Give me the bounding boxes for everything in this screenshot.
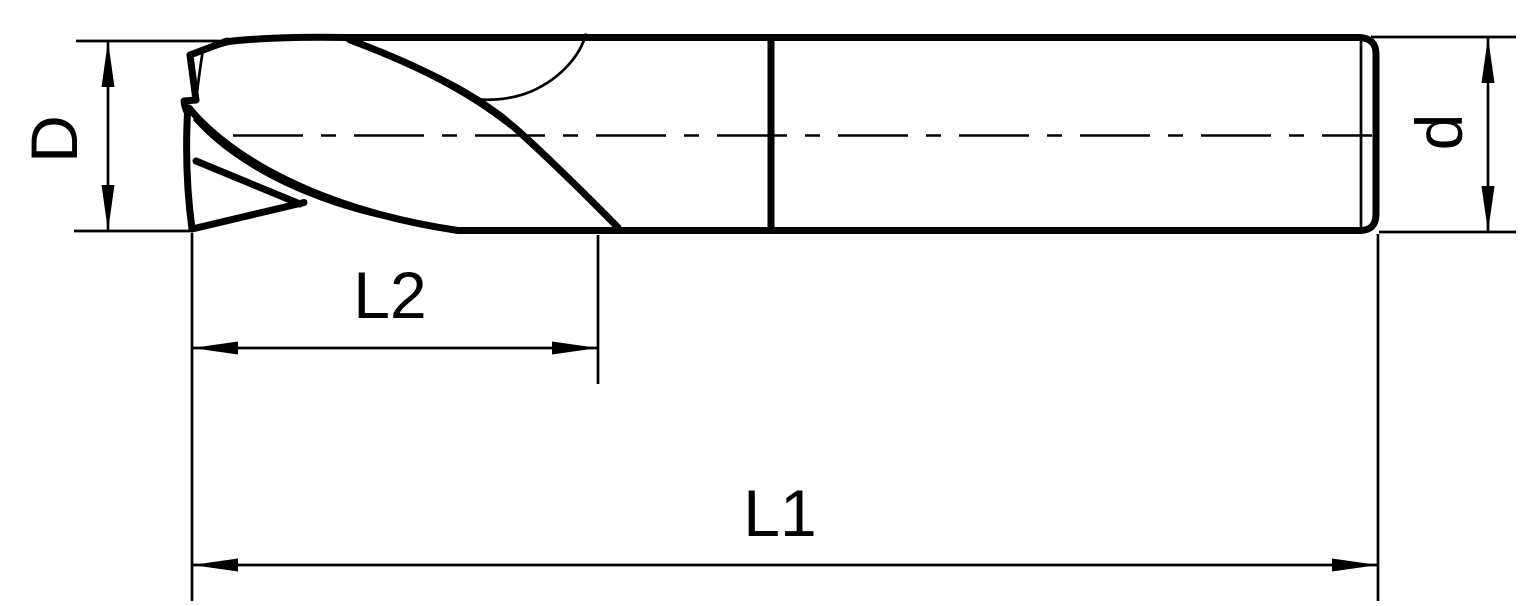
tool-body xyxy=(224,37,1376,230)
tip-corner-bevel xyxy=(190,41,227,55)
dimension-L1-label: L1 xyxy=(743,476,816,550)
flute-relief-outer-arc xyxy=(189,108,458,231)
dimension-L2-arrow-left xyxy=(192,342,238,355)
helix-edge-thick xyxy=(350,40,618,228)
dimension-D-arrow-down xyxy=(102,185,115,231)
second-flute-leaf-curve xyxy=(479,34,586,100)
dimension-L2-arrow-right xyxy=(552,342,598,355)
end-mill-technical-drawing: D d L2 L1 xyxy=(0,0,1529,606)
flutes xyxy=(189,34,618,231)
end-tooth-bottom-edge xyxy=(192,203,304,230)
dimension-d-arrow-up xyxy=(1482,37,1495,83)
dimension-D-label: D xyxy=(17,115,91,163)
tip-left-edge-lower xyxy=(187,113,192,229)
dimension-d-label: d xyxy=(1402,114,1476,151)
dimension-d: d xyxy=(1371,37,1516,232)
tip-left-edge-upper xyxy=(190,55,196,100)
dimension-L2-label: L2 xyxy=(353,258,426,332)
dimension-D-arrow-up xyxy=(102,41,115,87)
dimension-L1-arrow-left xyxy=(192,559,238,572)
dimension-d-arrow-down xyxy=(1482,186,1495,232)
drawing-canvas: D d L2 L1 xyxy=(0,0,1529,606)
dimension-L1-arrow-right xyxy=(1332,559,1378,572)
dimension-L2: L2 xyxy=(192,235,598,384)
tool-silhouette-outline xyxy=(224,37,1376,230)
